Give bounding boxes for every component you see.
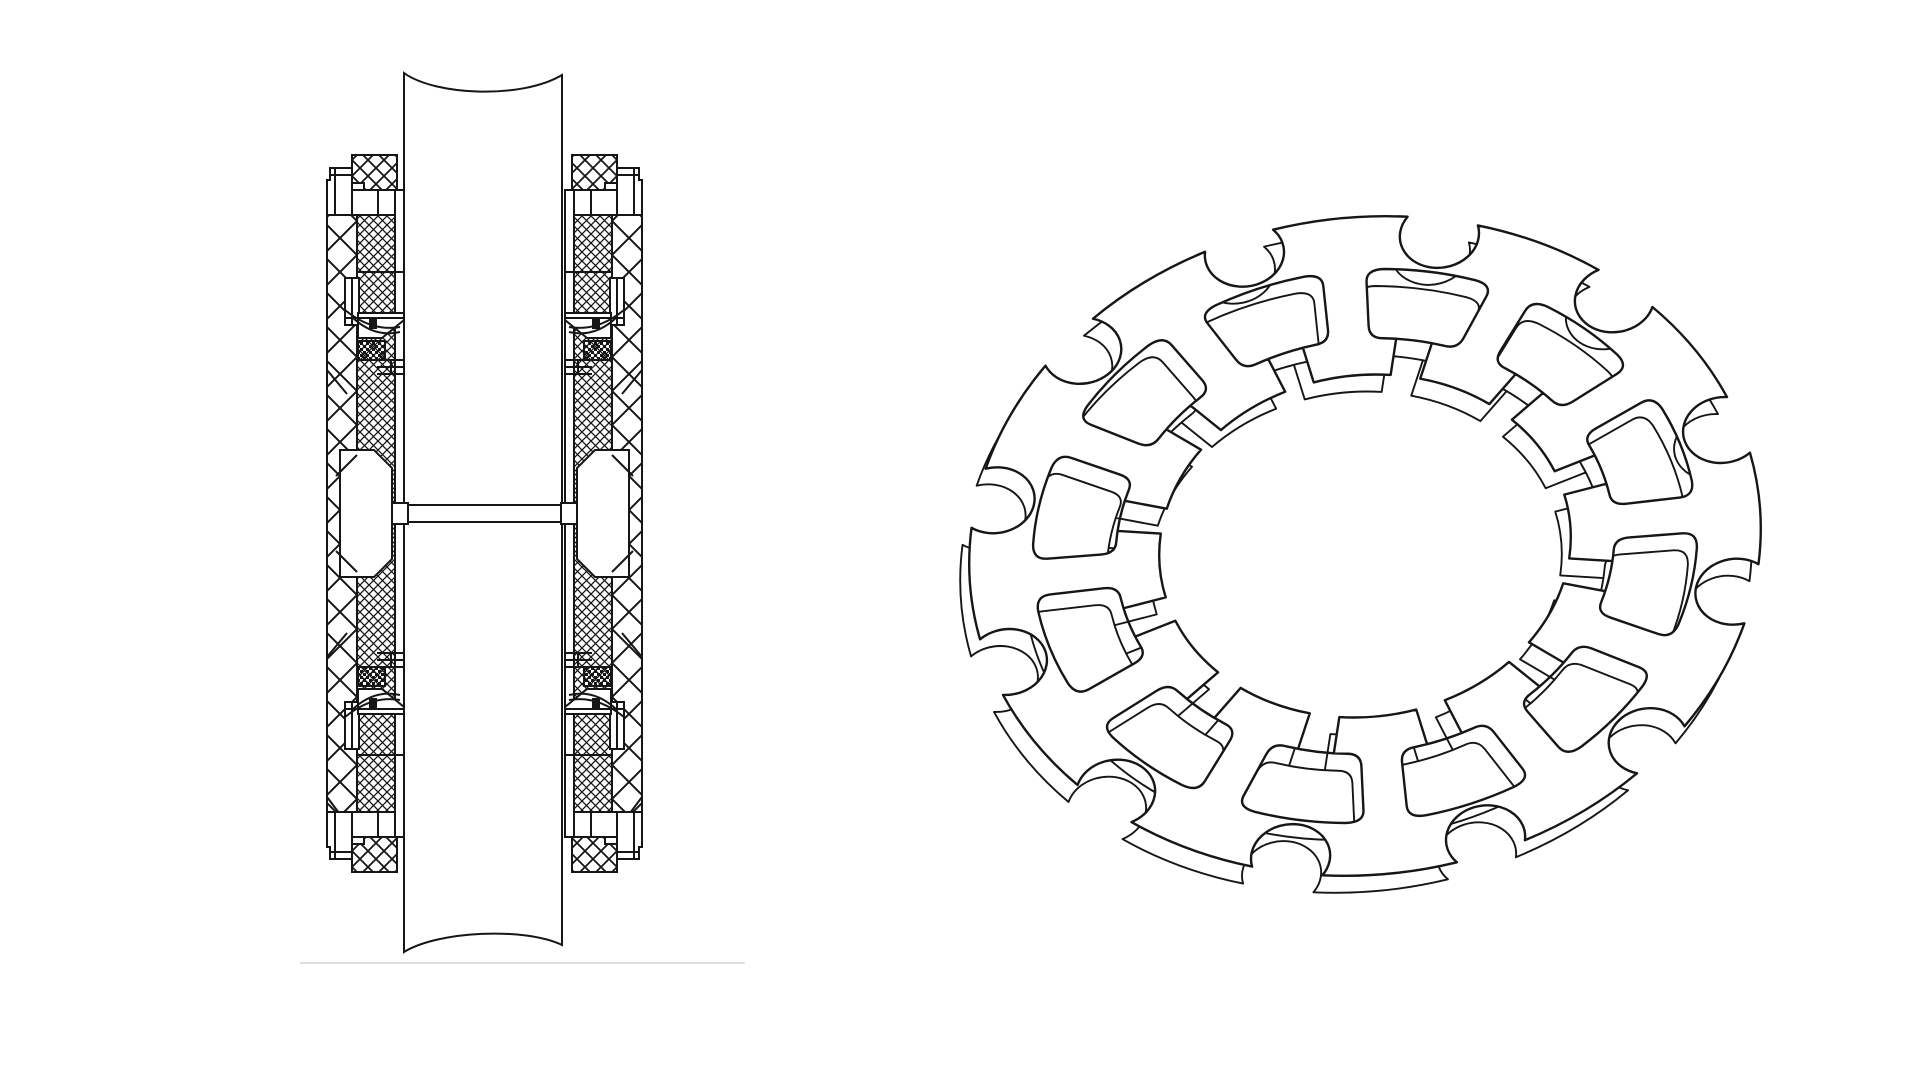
- cross-section-figure: [300, 73, 745, 963]
- technical-drawing: [0, 0, 1920, 1080]
- patent-drawing-canvas: [0, 0, 1920, 1080]
- slotted-ring-figure: [917, 166, 1804, 944]
